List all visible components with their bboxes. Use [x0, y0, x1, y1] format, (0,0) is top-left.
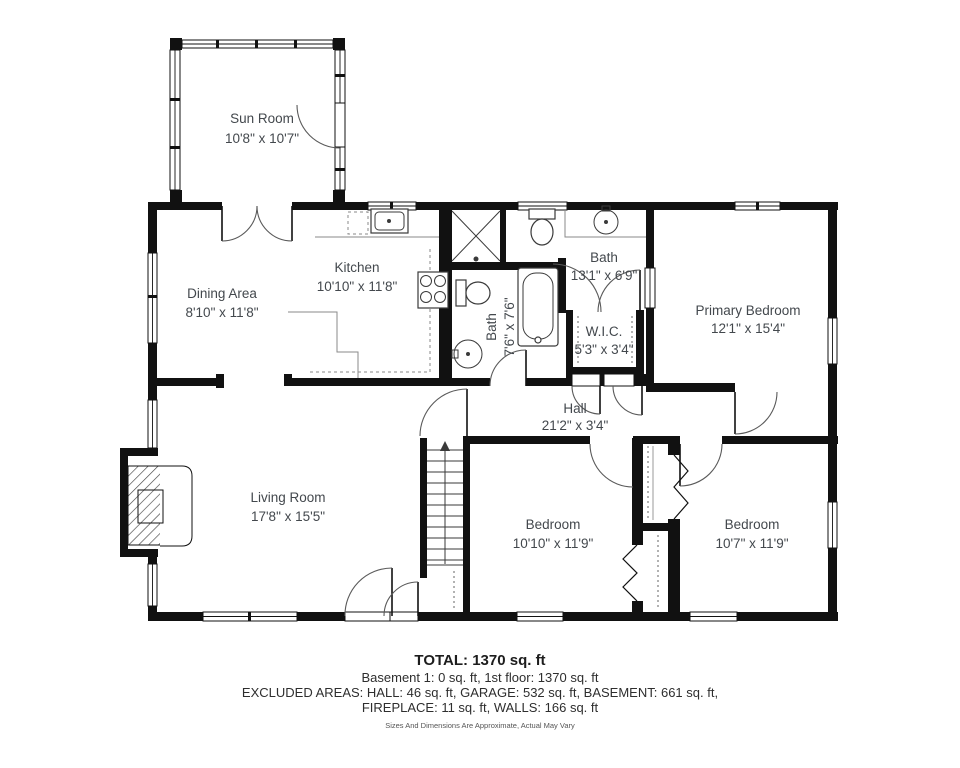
side-door-threshold — [390, 612, 418, 621]
room-label-dining: Dining Area 8'10" x 11'8" — [185, 286, 258, 320]
total-area-text: TOTAL: 1370 sq. ft — [414, 652, 545, 669]
room-label-living-room: Living Room 17'8" x 15'5" — [250, 490, 325, 524]
svg-text:Hall: Hall — [563, 401, 586, 416]
hall-door-right — [613, 386, 642, 415]
room-label-bedroom-left: Bedroom 10'10" x 11'9" — [513, 517, 594, 551]
dishwasher-symbol — [348, 212, 368, 234]
room-labels: Sun Room 10'8" x 10'7" Dining Area 8'10"… — [185, 111, 800, 551]
room-label-bath-small: Bath 7'6" x 7'6" — [484, 297, 517, 356]
bath-main-sink-symbol — [594, 206, 618, 234]
sun-room-door-frame — [335, 103, 345, 147]
svg-text:Kitchen: Kitchen — [334, 260, 379, 275]
svg-text:W.I.C.: W.I.C. — [586, 324, 623, 339]
kitchen-sink-symbol — [371, 209, 408, 233]
french-doors — [222, 206, 292, 241]
excluded-areas-text-2: FIREPLACE: 11 sq. ft, WALLS: 166 sq. ft — [362, 700, 599, 715]
room-label-bath-main: Bath 13'1" x 6'9" — [571, 250, 638, 283]
fireplace-symbol — [120, 448, 192, 557]
svg-text:Dining Area: Dining Area — [187, 286, 257, 301]
sun-room-door — [297, 105, 340, 148]
svg-text:10'10" x 11'8": 10'10" x 11'8" — [317, 279, 398, 294]
svg-text:Bath: Bath — [484, 313, 499, 341]
stairs — [427, 441, 463, 610]
doors — [222, 105, 777, 616]
room-label-primary-bedroom: Primary Bedroom 12'1" x 15'4" — [695, 303, 800, 336]
shower-symbol — [452, 211, 500, 262]
footer-summary: TOTAL: 1370 sq. ft Basement 1: 0 sq. ft,… — [242, 652, 718, 730]
svg-text:21'2" x 3'4": 21'2" x 3'4" — [542, 418, 609, 433]
svg-text:8'10" x 11'8": 8'10" x 11'8" — [185, 305, 258, 320]
svg-text:7'6" x 7'6": 7'6" x 7'6" — [502, 297, 517, 356]
svg-text:5'3" x 3'4": 5'3" x 3'4" — [574, 342, 633, 357]
bath-main-toilet-symbol — [529, 209, 555, 245]
stairs-door — [420, 389, 467, 436]
wic-opening-left — [572, 374, 600, 386]
room-label-bedroom-right: Bedroom 10'7" x 11'9" — [715, 517, 788, 551]
svg-text:10'8" x 10'7": 10'8" x 10'7" — [225, 131, 299, 146]
bedroom-right-door — [680, 444, 722, 486]
svg-text:13'1" x 6'9": 13'1" x 6'9" — [571, 268, 638, 283]
floor-plan-canvas: Sun Room 10'8" x 10'7" Dining Area 8'10"… — [0, 0, 960, 768]
stove-symbol — [418, 272, 448, 308]
svg-text:10'10" x 11'9": 10'10" x 11'9" — [513, 536, 594, 551]
svg-text:Living Room: Living Room — [250, 490, 325, 505]
svg-text:Bedroom: Bedroom — [725, 517, 780, 532]
svg-text:12'1" x 15'4": 12'1" x 15'4" — [711, 321, 785, 336]
excluded-areas-text: EXCLUDED AREAS: HALL: 46 sq. ft, GARAGE:… — [242, 685, 718, 700]
svg-text:17'8" x 15'5": 17'8" x 15'5" — [251, 509, 325, 524]
bath-small-toilet-symbol — [456, 280, 490, 306]
primary-bedroom-door — [735, 392, 777, 434]
bath-small-sink-symbol — [452, 340, 482, 368]
svg-text:Primary Bedroom: Primary Bedroom — [695, 303, 800, 318]
svg-text:Bath: Bath — [590, 250, 618, 265]
wic-opening-right — [604, 374, 634, 386]
room-label-sun-room: Sun Room 10'8" x 10'7" — [225, 111, 299, 146]
bifold-door-left — [623, 545, 637, 601]
svg-text:Bedroom: Bedroom — [526, 517, 581, 532]
bathtub-symbol — [518, 268, 558, 346]
disclaimer-text: Sizes And Dimensions Are Approximate, Ac… — [385, 721, 575, 730]
svg-text:10'7" x 11'9": 10'7" x 11'9" — [715, 536, 788, 551]
floor-breakdown-text: Basement 1: 0 sq. ft, 1st floor: 1370 sq… — [361, 670, 598, 685]
bifold-door-right — [674, 455, 688, 519]
room-label-kitchen: Kitchen 10'10" x 11'8" — [317, 260, 398, 294]
svg-text:Sun Room: Sun Room — [230, 111, 294, 126]
stairs-up-arrow — [440, 441, 450, 451]
front-door-threshold — [345, 612, 390, 621]
room-label-wic: W.I.C. 5'3" x 3'4" — [574, 324, 633, 357]
room-label-hall: Hall 21'2" x 3'4" — [542, 401, 609, 433]
side-door — [384, 582, 418, 616]
bedroom-left-door — [590, 444, 633, 487]
